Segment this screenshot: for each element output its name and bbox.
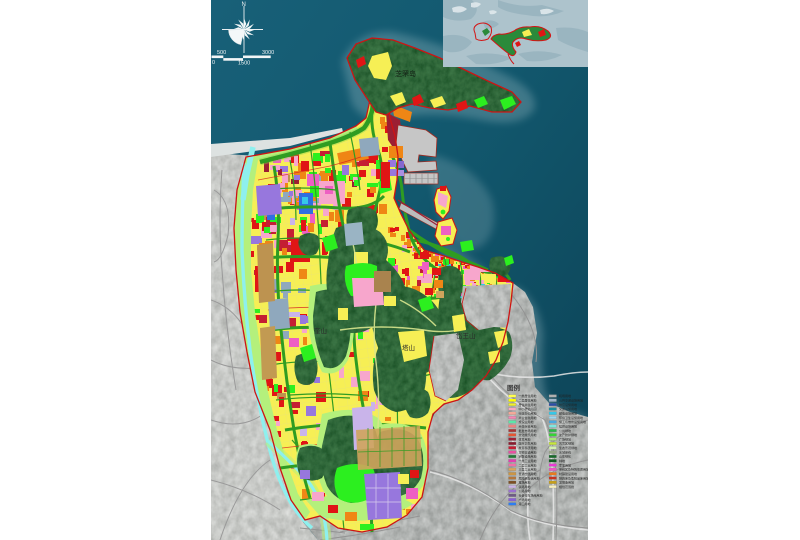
svg-text:生态景观绿地: 生态景观绿地 (559, 445, 577, 450)
svg-text:文物古迹用地: 文物古迹用地 (519, 449, 537, 454)
svg-text:普通仓储用地: 普通仓储用地 (519, 471, 537, 476)
svg-text:一类工业用地: 一类工业用地 (519, 458, 537, 463)
svg-text:危险品仓储用地: 危险品仓储用地 (519, 475, 540, 480)
svg-text:交通设施用地: 交通设施用地 (559, 406, 577, 411)
svg-text:二类工业用地: 二类工业用地 (519, 462, 537, 467)
svg-text:风景区绿地: 风景区绿地 (559, 441, 574, 446)
svg-text:500: 500 (217, 50, 226, 56)
svg-text:水域岸线: 水域岸线 (559, 449, 571, 454)
svg-text:军事用地: 军事用地 (559, 462, 571, 467)
svg-text:岱王山: 岱王山 (456, 331, 476, 340)
svg-text:3000: 3000 (262, 50, 274, 56)
svg-text:三类工业用地: 三类工业用地 (519, 467, 537, 472)
svg-text:邮电设施用地: 邮电设施用地 (559, 411, 577, 416)
svg-text:生产防护绿地: 生产防护绿地 (559, 432, 577, 437)
svg-text:奎山: 奎山 (314, 326, 327, 335)
svg-text:公共交通设施用地: 公共交通设施用地 (559, 398, 583, 403)
svg-text:殡葬设施用地: 殡葬设施用地 (559, 423, 577, 428)
svg-text:供应设施用地: 供应设施用地 (559, 402, 577, 407)
svg-text:弹药库及危险品库用地: 弹药库及危险品库用地 (559, 475, 589, 480)
svg-text:图例: 图例 (507, 383, 521, 392)
svg-text:旅馆业用地: 旅馆业用地 (519, 419, 534, 424)
svg-text:广场绿地: 广场绿地 (559, 436, 571, 441)
svg-text:宗教设施用地: 宗教设施用地 (519, 454, 537, 459)
svg-text:保税区及特殊性质用地: 保税区及特殊性质用地 (559, 467, 589, 472)
svg-text:教育科研用地: 教育科研用地 (519, 445, 537, 450)
svg-text:1500: 1500 (238, 61, 250, 67)
svg-text:规划范围线: 规划范围线 (559, 484, 574, 489)
svg-text:公路用地: 公路用地 (519, 488, 531, 493)
svg-text:发展备用地: 发展备用地 (559, 480, 574, 485)
svg-text:居住商住用地: 居住商住用地 (519, 402, 537, 407)
svg-text:港口用地: 港口用地 (519, 501, 531, 506)
svg-text:环境卫生设施用地: 环境卫生设施用地 (559, 415, 583, 420)
svg-text:二类居住用地: 二类居住用地 (519, 398, 537, 403)
svg-text:社会停车场库用地: 社会停车场库用地 (519, 493, 543, 498)
svg-text:机场用地: 机场用地 (559, 393, 571, 398)
svg-text:商住综合用地: 商住综合用地 (519, 423, 537, 428)
svg-text:行政办公用地: 行政办公用地 (519, 411, 537, 416)
svg-text:堆场用地: 堆场用地 (519, 480, 531, 485)
svg-text:林地: 林地 (559, 458, 565, 463)
svg-text:芝罘岛: 芝罘岛 (395, 69, 416, 78)
svg-text:一类居住用地: 一类居住用地 (519, 393, 537, 398)
svg-text:中小学幼儿园: 中小学幼儿园 (519, 406, 537, 411)
svg-text:N: N (242, 2, 246, 8)
svg-text:广场用地: 广场用地 (519, 497, 531, 502)
svg-text:文化娱乐用地: 文化娱乐用地 (519, 432, 537, 437)
svg-text:村镇建设用地: 村镇建设用地 (559, 471, 577, 476)
svg-text:批发市场用地: 批发市场用地 (519, 428, 537, 433)
svg-text:塔山: 塔山 (402, 343, 415, 352)
svg-text:医疗卫生用地: 医疗卫生用地 (519, 441, 537, 446)
svg-text:山体绿化: 山体绿化 (559, 454, 571, 459)
svg-text:0: 0 (212, 60, 215, 66)
svg-text:铁路用地: 铁路用地 (519, 484, 531, 489)
svg-text:公共绿地: 公共绿地 (559, 428, 571, 433)
svg-text:施工与维修设施用地: 施工与维修设施用地 (559, 419, 586, 424)
svg-text:商业金融用地: 商业金融用地 (519, 415, 537, 420)
svg-text:体育用地: 体育用地 (519, 436, 531, 441)
